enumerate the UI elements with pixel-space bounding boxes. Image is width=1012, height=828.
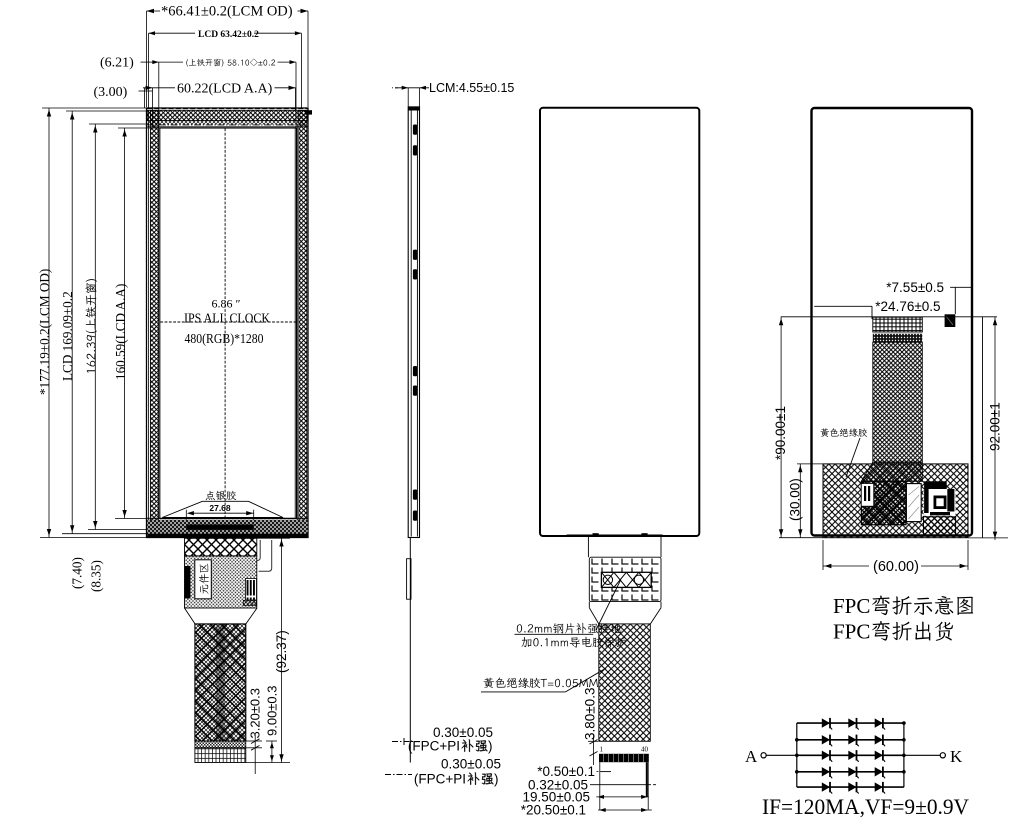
svg-text:*20.50±0.1: *20.50±0.1 (521, 803, 586, 818)
svg-text:LCD 63.42±0.2: LCD 63.42±0.2 (198, 30, 259, 40)
svg-text:(8.35): (8.35) (89, 560, 104, 592)
svg-text:): ) (494, 772, 499, 787)
svg-text:LCD 169.09±0.2: LCD 169.09±0.2 (60, 291, 75, 381)
svg-text:480(RGB)*1280: 480(RGB)*1280 (185, 331, 264, 346)
svg-text:FPC: FPC (833, 594, 870, 618)
svg-text:0.30±0.05: 0.30±0.05 (441, 757, 501, 772)
svg-text:3.20±0.3: 3.20±0.3 (248, 688, 263, 739)
svg-text:(FPC+PI: (FPC+PI (408, 739, 460, 754)
svg-text:1: 1 (600, 746, 604, 754)
svg-text:27.68: 27.68 (209, 503, 231, 513)
svg-text:6.86 ″: 6.86 ″ (212, 297, 241, 311)
svg-text:9.00±0.3: 9.00±0.3 (264, 685, 279, 736)
svg-text:3.80±0.3: 3.80±0.3 (583, 688, 598, 740)
svg-text:(60.00): (60.00) (873, 559, 919, 575)
svg-text:*90.00±1: *90.00±1 (773, 406, 788, 460)
svg-text:LCM:4.55±0.15: LCM:4.55±0.15 (429, 81, 514, 95)
svg-text:40: 40 (641, 746, 649, 754)
svg-text:(7.40): (7.40) (70, 557, 85, 589)
svg-text:): ) (488, 739, 493, 754)
svg-text:K: K (950, 747, 963, 766)
svg-text:60.22(LCD A.A): 60.22(LCD A.A) (177, 82, 273, 97)
svg-text:(6.21): (6.21) (100, 56, 134, 71)
svg-text:IF=120MA,VF=9±0.9V: IF=120MA,VF=9±0.9V (762, 794, 969, 819)
svg-text:*24.76±0.5: *24.76±0.5 (875, 299, 940, 314)
svg-text:A: A (745, 747, 758, 766)
svg-text:(FPC+PI: (FPC+PI (414, 772, 466, 787)
svg-text:*7.55±0.5: *7.55±0.5 (886, 280, 944, 295)
svg-text:*177.19±0.2(LCM OD): *177.19±0.2(LCM OD) (37, 269, 52, 395)
svg-text:(3.00): (3.00) (94, 85, 128, 100)
svg-text:IPS ALL CLOCK: IPS ALL CLOCK (184, 311, 270, 326)
svg-text:*66.41±0.2(LCM OD): *66.41±0.2(LCM OD) (161, 4, 293, 20)
svg-text:160.59(LCD A.A): 160.59(LCD A.A) (113, 284, 128, 380)
svg-text:FPC: FPC (833, 620, 870, 644)
